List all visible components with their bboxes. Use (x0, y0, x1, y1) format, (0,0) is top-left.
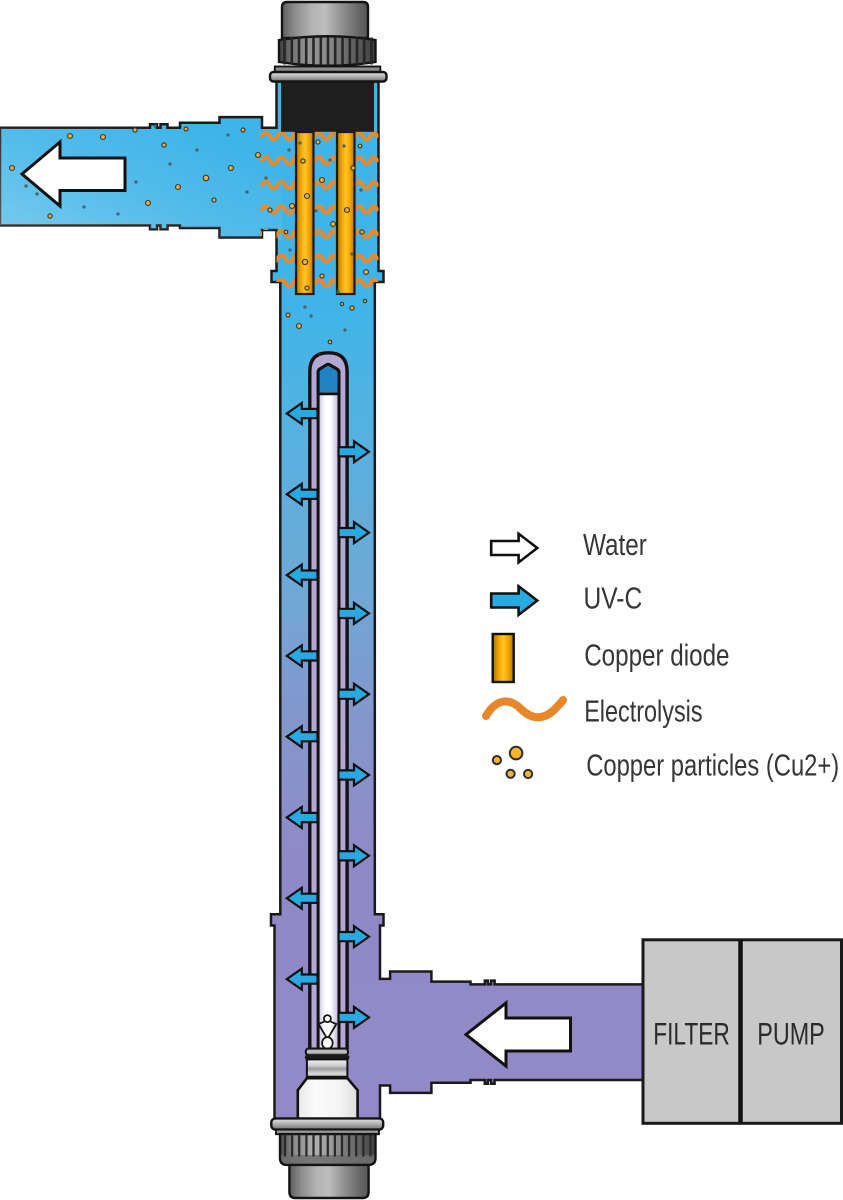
svg-text:FILTER: FILTER (653, 1016, 730, 1052)
svg-text:Copper particles (Cu2+): Copper particles (Cu2+) (586, 748, 839, 782)
svg-text:Copper diode: Copper diode (584, 639, 729, 673)
svg-text:UV-C: UV-C (584, 581, 643, 615)
svg-text:Water: Water (583, 528, 647, 562)
svg-text:Electrolysis: Electrolysis (584, 694, 702, 728)
svg-text:PUMP: PUMP (757, 1016, 825, 1052)
